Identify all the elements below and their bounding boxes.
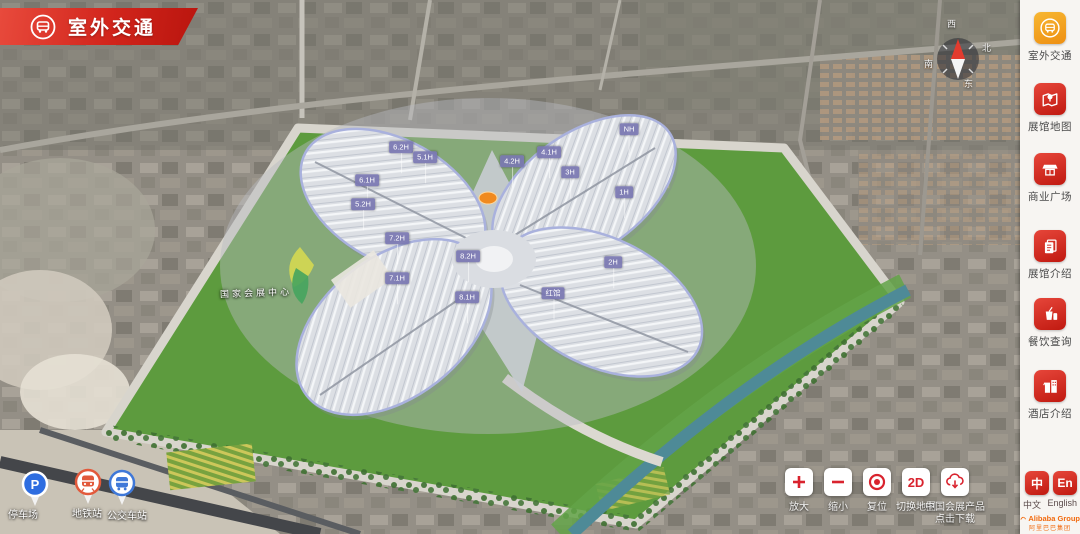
cloud-download-icon xyxy=(944,471,966,493)
download-label: 中国会展产品点击下载 xyxy=(925,502,985,526)
compass[interactable]: 西 北 东 南 xyxy=(916,15,1000,99)
hall-tag[interactable]: 7.2H xyxy=(385,232,409,244)
hall-tag[interactable]: 4.2H xyxy=(500,155,524,167)
hall-tag[interactable]: 5.1H xyxy=(413,151,437,163)
sidebar-item-venue-intro[interactable]: 展馆介绍 xyxy=(1020,230,1080,281)
map-artwork xyxy=(0,0,1020,534)
sidebar-item-label: 室外交通 xyxy=(1020,48,1080,63)
hall-tag[interactable]: 4.1H xyxy=(537,146,561,158)
hotel-icon xyxy=(1034,370,1066,402)
target-icon xyxy=(867,472,887,492)
site-sign: 国家会展中心 xyxy=(220,285,292,301)
bus-stop-icon xyxy=(107,469,137,507)
hall-tag[interactable]: 8.1H xyxy=(455,291,479,303)
hall-tag[interactable]: 2H xyxy=(604,256,622,268)
metro-station-pin[interactable] xyxy=(73,468,103,506)
reset-view-button[interactable] xyxy=(863,468,891,496)
sidebar: 室外交通 展馆地图 商业广场 xyxy=(1020,0,1080,534)
sidebar-item-label: 餐饮查询 xyxy=(1020,334,1080,349)
zoom-in-button[interactable] xyxy=(785,468,813,496)
legend: P xyxy=(0,466,200,526)
brand-name: Alibaba Group xyxy=(1028,514,1080,523)
brand-logo: Alibaba Group 阿里巴巴集团 xyxy=(1020,513,1080,532)
sidebar-item-commercial-plaza[interactable]: 商业广场 xyxy=(1020,153,1080,204)
zoom-out-label: 缩小 xyxy=(828,502,848,514)
hall-tag[interactable]: 5.2H xyxy=(351,198,375,210)
bus-icon xyxy=(1034,12,1066,44)
compass-east-label: 东 xyxy=(964,77,973,90)
legend-label-parking: 停车场 xyxy=(8,506,38,521)
legend-label-bus: 公交车站 xyxy=(107,507,147,522)
svg-text:P: P xyxy=(31,477,40,492)
plus-icon xyxy=(791,474,807,490)
sidebar-item-label: 展馆地图 xyxy=(1020,119,1080,134)
zoom-out-button[interactable] xyxy=(824,468,852,496)
brand-name-cn: 阿里巴巴集团 xyxy=(1020,523,1080,532)
language-en-button[interactable]: En xyxy=(1053,471,1077,495)
alibaba-swoosh-icon xyxy=(1020,513,1026,523)
app-window: 6.2H5.1H6.1H5.2H7.2H7.1H8.2H8.1H4.2H4.1H… xyxy=(0,0,1080,534)
bus-icon xyxy=(30,14,56,40)
minus-icon xyxy=(830,474,846,490)
page-title-banner: 室外交通 xyxy=(0,8,198,45)
storefront-icon xyxy=(1034,153,1066,185)
hall-tag[interactable]: 3H xyxy=(561,166,579,178)
sidebar-item-outdoor-traffic[interactable]: 室外交通 xyxy=(1020,12,1080,63)
sidebar-item-dining[interactable]: 餐饮查询 xyxy=(1020,298,1080,349)
sidebar-item-label: 商业广场 xyxy=(1020,189,1080,204)
hall-tag[interactable]: NH xyxy=(620,123,639,135)
map-toolbar: 放大 缩小 复位 2D xyxy=(785,468,969,526)
page-title: 室外交通 xyxy=(68,13,156,40)
hall-tag[interactable]: 7.1H xyxy=(385,272,409,284)
language-en-label: English xyxy=(1047,498,1077,511)
compass-north-label: 北 xyxy=(982,41,991,54)
language-zh-label: 中文 xyxy=(1023,498,1041,511)
reset-view-label: 复位 xyxy=(867,502,887,514)
document-icon xyxy=(1034,230,1066,262)
hall-tag[interactable]: 6.1H xyxy=(355,174,379,186)
parking-icon: P xyxy=(20,470,50,508)
language-zh-button[interactable]: 中 xyxy=(1025,471,1049,495)
sidebar-item-label: 酒店介绍 xyxy=(1020,406,1080,421)
hall-tag[interactable]: 6.2H xyxy=(389,141,413,153)
sidebar-item-venue-map[interactable]: 展馆地图 xyxy=(1020,83,1080,134)
metro-icon xyxy=(73,468,103,506)
download-button[interactable] xyxy=(941,468,969,496)
legend-label-metro: 地铁站 xyxy=(72,505,102,520)
hall-tag[interactable]: 红馆 xyxy=(542,287,565,299)
map-pin-icon xyxy=(1034,83,1066,115)
sidebar-item-label: 展馆介绍 xyxy=(1020,266,1080,281)
map-3d-view[interactable]: 6.2H5.1H6.1H5.2H7.2H7.1H8.2H8.1H4.2H4.1H… xyxy=(0,0,1020,534)
map-2d-toggle-button[interactable]: 2D xyxy=(902,468,930,496)
bus-station-pin[interactable] xyxy=(107,469,137,507)
parking-pin[interactable]: P xyxy=(20,470,50,508)
compass-south-label: 南 xyxy=(924,57,933,70)
sidebar-item-hotel[interactable]: 酒店介绍 xyxy=(1020,370,1080,421)
drink-icon xyxy=(1034,298,1066,330)
compass-west-label: 西 xyxy=(947,17,956,30)
hall-tag[interactable]: 8.2H xyxy=(456,250,480,262)
hall-tag[interactable]: 1H xyxy=(615,186,633,198)
zoom-in-label: 放大 xyxy=(789,502,809,514)
